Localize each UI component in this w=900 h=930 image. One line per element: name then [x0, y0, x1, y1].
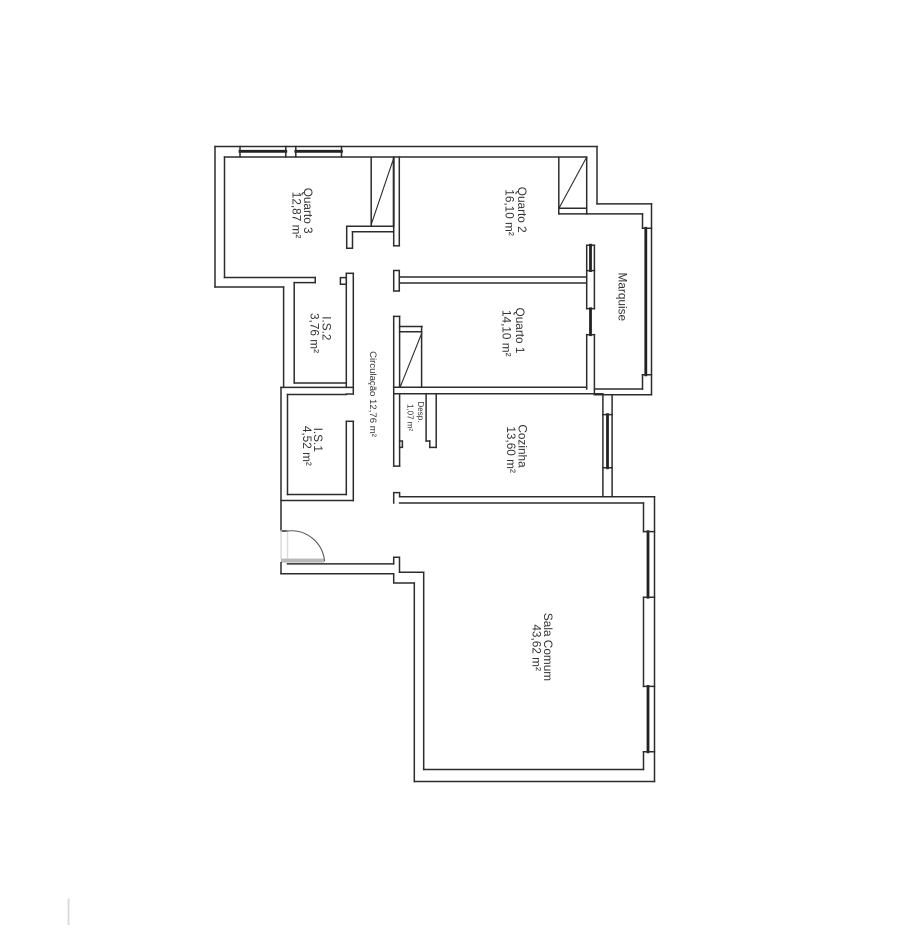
svg-text:Desp.: Desp. — [416, 402, 425, 423]
svg-text:4,52 m²: 4,52 m² — [300, 426, 314, 466]
svg-text:43,62 m²: 43,62 m² — [530, 624, 544, 671]
svg-text:1,07 m²: 1,07 m² — [406, 404, 415, 431]
svg-text:Circulação 12,76 m²: Circulação 12,76 m² — [367, 351, 378, 438]
svg-text:13,60 m²: 13,60 m² — [504, 426, 518, 473]
svg-text:3,76 m²: 3,76 m² — [307, 313, 321, 353]
svg-text:12,87 m²: 12,87 m² — [289, 192, 303, 239]
svg-text:16,10 m²: 16,10 m² — [503, 189, 517, 236]
svg-text:Marquise: Marquise — [616, 273, 630, 322]
svg-text:14,10 m²: 14,10 m² — [499, 310, 513, 357]
svg-text:Quarto 1: Quarto 1 — [513, 308, 527, 354]
